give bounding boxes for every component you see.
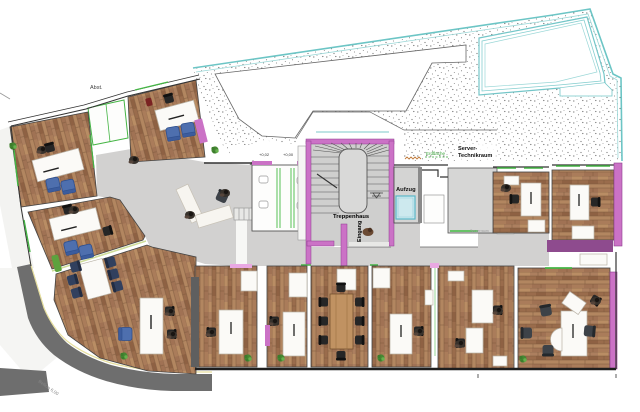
svg-text:Server-: Server-: [458, 146, 477, 152]
svg-text:Serverraum: Serverraum: [470, 229, 489, 233]
svg-text:+0,02: +0,02: [259, 152, 270, 157]
svg-text:Erdfläche: Erdfläche: [426, 151, 446, 156]
svg-text:+0,00: +0,00: [283, 152, 294, 157]
svg-text:Abst.: Abst.: [90, 85, 103, 91]
svg-text:Eingang: Eingang: [357, 221, 363, 242]
svg-text:Technikraum: Technikraum: [458, 153, 492, 159]
svg-text:Treppenhaus: Treppenhaus: [333, 214, 369, 220]
svg-text:Aufzug: Aufzug: [396, 187, 416, 193]
